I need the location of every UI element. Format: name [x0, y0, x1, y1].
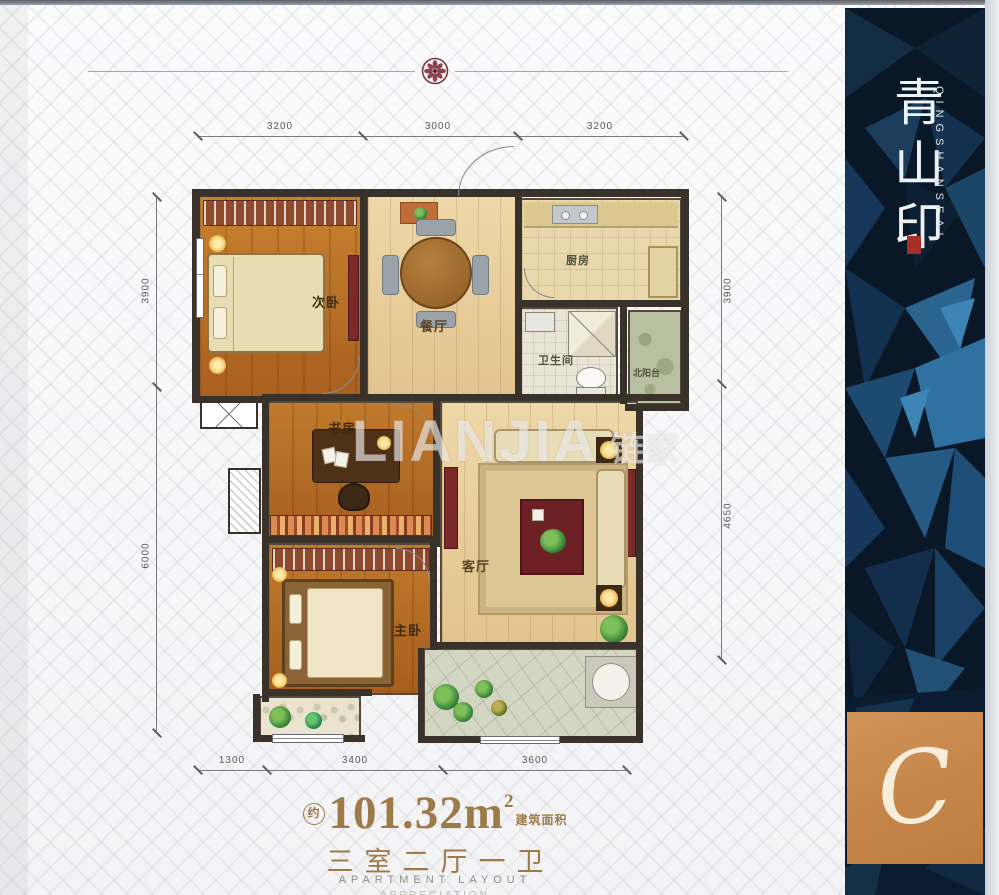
area-line: 约 101.32 m 2 建筑面积	[230, 792, 640, 835]
desk-chair	[338, 483, 370, 511]
pebble-balcony	[259, 696, 361, 738]
floor-lamp	[596, 585, 622, 611]
dresser	[348, 255, 359, 341]
monogram-block: C	[847, 712, 983, 864]
area-label: 建筑面积	[515, 811, 567, 828]
layout-title-en: APARTMENT LAYOUT	[230, 874, 640, 886]
dimension-label: 4650	[723, 494, 734, 538]
dining-chair	[472, 255, 489, 295]
wardrobe	[203, 200, 357, 226]
window	[196, 238, 204, 318]
dining-chair	[416, 219, 456, 236]
kitchen-counter	[524, 202, 678, 228]
area-value: 101.32	[329, 792, 464, 835]
potted-plant	[600, 615, 628, 643]
dim-tick	[152, 192, 162, 202]
entry-door-arc	[458, 146, 514, 196]
fridge	[648, 246, 678, 298]
bookshelf	[270, 515, 432, 536]
lamp	[272, 673, 287, 688]
sofa-side	[596, 469, 626, 589]
wall	[515, 300, 687, 307]
room-label-dining: 餐厅	[420, 316, 448, 335]
dining-table	[400, 237, 472, 309]
wall	[192, 189, 689, 197]
garden-balcony	[423, 648, 638, 740]
wall	[418, 648, 424, 743]
garden-table-pad	[585, 656, 637, 708]
dim-tick	[717, 192, 727, 202]
dim-line-left	[156, 197, 157, 733]
watermark-text-en: LIANJIA	[352, 408, 599, 475]
lamp	[272, 567, 287, 582]
dining-chair	[382, 255, 399, 295]
photo-edge-right	[985, 0, 999, 895]
dim-line-top	[198, 136, 684, 137]
area-unit: m	[464, 792, 504, 835]
dim-tick	[717, 379, 727, 389]
bathroom-sink	[525, 312, 555, 332]
dim-tick	[152, 382, 162, 392]
window	[480, 736, 560, 744]
dimension-label: 3900	[723, 269, 734, 313]
dim-tick	[152, 728, 162, 738]
dimension-label: 6000	[141, 534, 152, 578]
dimension-label: 3400	[333, 755, 377, 766]
wall	[360, 189, 367, 401]
dim-line-bottom	[198, 770, 627, 771]
brand-name-en: QINGSHANSEAL	[933, 86, 945, 245]
dimension-label: 3000	[416, 121, 460, 132]
watermark-text-cn: 链家	[611, 422, 679, 471]
room-label-living: 客厅	[462, 556, 490, 575]
photo-edge-left	[0, 5, 28, 895]
wall	[620, 307, 627, 404]
wall	[515, 189, 522, 401]
room-north-balcony	[628, 310, 682, 405]
dimension-label: 3600	[513, 755, 557, 766]
wall	[262, 689, 372, 696]
header-rule-right	[455, 71, 788, 72]
approx-badge: 约	[303, 803, 325, 825]
room-label-kitchen: 厨房	[566, 252, 590, 268]
room-label-secondary-bedroom: 次卧	[312, 292, 340, 311]
floorplan-page: 3200 3000 3200 1300 3400 3600 3900 6000 …	[0, 0, 999, 895]
ac-platform	[228, 468, 261, 534]
wall	[636, 645, 643, 743]
lianjia-watermark: LIANJIA 链家	[352, 408, 679, 475]
kitchen-sink	[552, 205, 598, 224]
room-dining	[366, 195, 517, 398]
red-seal	[907, 236, 921, 254]
bed	[282, 579, 394, 687]
wall	[430, 540, 437, 650]
coffee-table	[520, 499, 584, 575]
shower	[568, 311, 616, 357]
dim-tick	[717, 655, 727, 665]
area-exponent: 2	[504, 791, 514, 813]
dimension-label: 3900	[141, 269, 152, 313]
room-label-bathroom: 卫生间	[538, 352, 574, 368]
wall	[192, 396, 270, 403]
brand-panel: 青山印 QINGSHANSEAL C	[845, 8, 985, 895]
header-rule-left	[88, 71, 415, 72]
wall	[262, 396, 269, 702]
garden-table	[592, 663, 630, 701]
dim-line-right	[721, 197, 722, 660]
bed	[207, 253, 325, 353]
layout-subtitle-en: APPRECIATION	[230, 890, 640, 895]
dimension-label: 1300	[210, 755, 254, 766]
room-label-master-bedroom: 主卧	[394, 620, 422, 639]
room-label-north-balcony: 北阳台	[633, 366, 660, 379]
bay-window	[200, 399, 258, 429]
wall	[262, 536, 440, 543]
dimension-label: 3200	[258, 121, 302, 132]
lamp	[209, 357, 226, 374]
tv-console	[444, 467, 458, 549]
window	[272, 734, 344, 743]
lamp	[209, 235, 226, 252]
monogram-letter: C	[872, 734, 959, 841]
photo-edge-top	[0, 0, 999, 5]
wall	[436, 642, 642, 649]
dimension-label: 3200	[578, 121, 622, 132]
toilet	[576, 367, 606, 389]
rosette-medallion-icon	[421, 57, 449, 85]
